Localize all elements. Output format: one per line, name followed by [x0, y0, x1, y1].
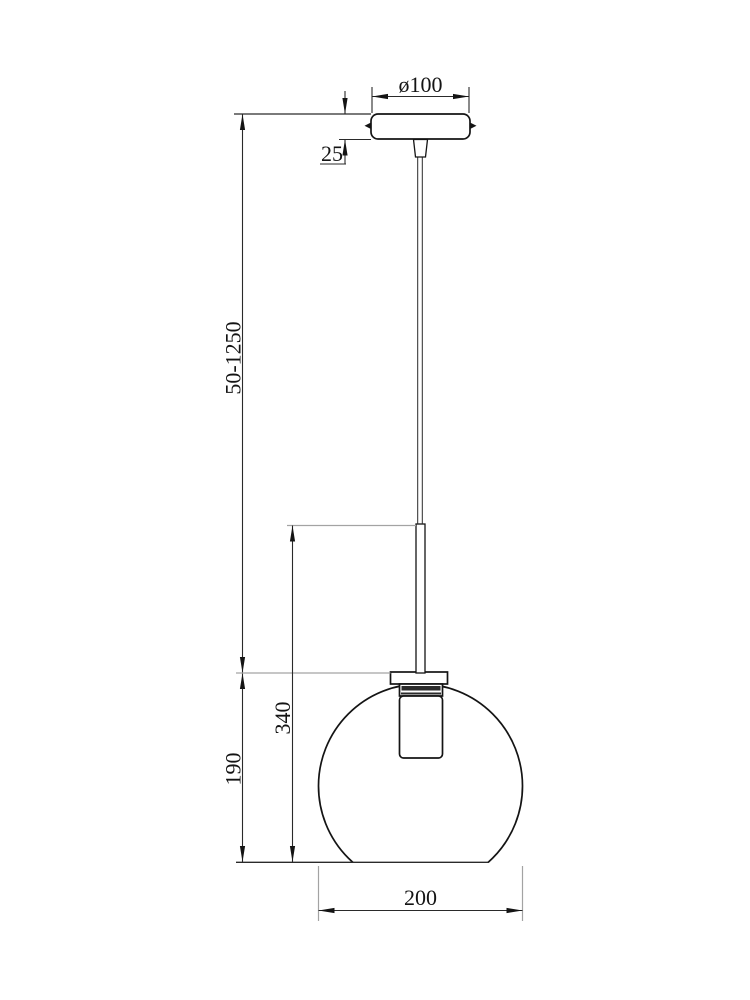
- dim-label-shade-width: 200: [404, 885, 437, 910]
- arrowhead-down: [240, 657, 245, 673]
- dim-label-body-height: 340: [270, 702, 295, 735]
- arrowhead-up: [290, 526, 295, 542]
- arrowhead-up: [240, 114, 245, 130]
- canopy-screw-left: [365, 123, 372, 130]
- dim-label-canopy-diameter: ø100: [399, 72, 443, 97]
- dimension-body-height: 340: [270, 526, 416, 863]
- arrowhead-down: [342, 98, 347, 114]
- arrowhead-up: [342, 140, 347, 156]
- arrowhead-left: [372, 94, 388, 99]
- dimension-canopy-height: 25: [320, 91, 371, 166]
- canopy-screw-right: [470, 123, 477, 130]
- dim-label-shade-height: 190: [221, 753, 246, 786]
- arrowhead-up: [240, 673, 245, 689]
- dim-label-suspension-range: 50-1250: [221, 321, 246, 394]
- thread-band: [402, 686, 441, 691]
- drawing-canvas: ø100 25 50-1250 190: [0, 0, 750, 1000]
- arrowhead-right: [507, 908, 523, 913]
- holder-cap: [391, 672, 448, 684]
- arrowhead-left: [319, 908, 335, 913]
- dimension-suspension-range: 50-1250: [221, 114, 246, 862]
- dimension-shade-height: 190: [221, 673, 246, 862]
- arrowhead-right: [453, 94, 469, 99]
- pendant-lamp-technical-drawing: ø100 25 50-1250 190: [0, 0, 750, 1000]
- dim-label-canopy-height: 25: [321, 141, 343, 166]
- dimension-canopy-diameter: ø100: [372, 72, 469, 113]
- holder-socket: [400, 696, 443, 758]
- cord-grip: [414, 140, 428, 158]
- arrowhead-down: [240, 846, 245, 862]
- suspension-stem: [416, 524, 425, 673]
- arrowhead-down: [290, 846, 295, 862]
- canopy-body: [371, 114, 470, 139]
- suspension: [414, 140, 428, 674]
- lamp-holder: [391, 672, 448, 758]
- ceiling-mount: [234, 114, 477, 139]
